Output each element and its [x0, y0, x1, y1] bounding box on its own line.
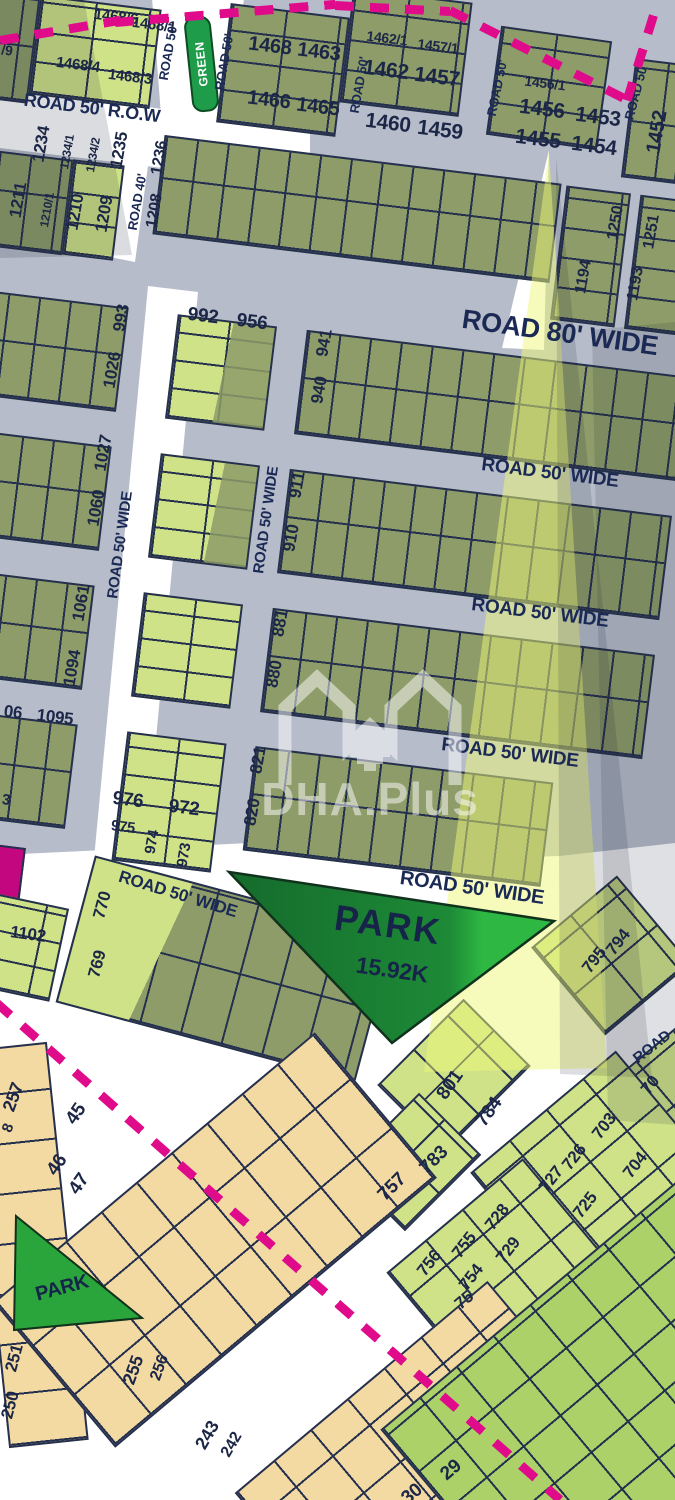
plot-label-974: 974 — [143, 829, 162, 855]
plot-label-880: 880 — [263, 659, 285, 689]
plot-label-1457: 1457 — [413, 64, 461, 90]
plot-label-1468: 1468 — [247, 33, 292, 58]
plot-label-940: 940 — [308, 375, 330, 405]
map-canvas[interactable]: GREEN 1468/6 1468/1 1468/4 1468/3 /9 ROA… — [0, 0, 675, 1500]
plot-label-1456: 1456 — [518, 96, 566, 122]
plot-label-820: 820 — [241, 797, 263, 827]
plot-label-911: 911 — [286, 470, 307, 499]
plot-label-9-partial: /9 — [1, 42, 14, 57]
plot-label-1102: 1102 — [9, 923, 47, 945]
plot-label-821: 821 — [247, 745, 269, 775]
plot-label-992: 992 — [187, 305, 220, 328]
plot-label-976: 976 — [112, 789, 145, 812]
plot-label-1466: 1466 — [246, 87, 291, 112]
plot-label-06-partial: 06 — [3, 702, 23, 721]
plot-label-1453: 1453 — [574, 104, 622, 130]
plot-label-972: 972 — [168, 797, 201, 820]
plot-label-975: 975 — [110, 818, 136, 836]
green-strip-label: GREEN — [192, 41, 211, 87]
plot-label-1463: 1463 — [296, 39, 341, 64]
plot-label-1095: 1095 — [36, 706, 74, 727]
plot-label-1465: 1465 — [295, 94, 340, 119]
plot-label-910: 910 — [280, 523, 302, 553]
plot-label-956: 956 — [236, 311, 269, 334]
plot-label-1459: 1459 — [416, 117, 464, 143]
plot-label-1462: 1462 — [362, 57, 410, 83]
plot-label-973: 973 — [175, 842, 194, 868]
plot-label-881: 881 — [269, 608, 291, 638]
plot-label-1454: 1454 — [570, 133, 618, 159]
plot-label-941: 941 — [313, 328, 335, 358]
plot-label-1460: 1460 — [364, 110, 412, 136]
plot-label-1455: 1455 — [514, 126, 562, 152]
plot-label-993: 993 — [110, 303, 132, 333]
